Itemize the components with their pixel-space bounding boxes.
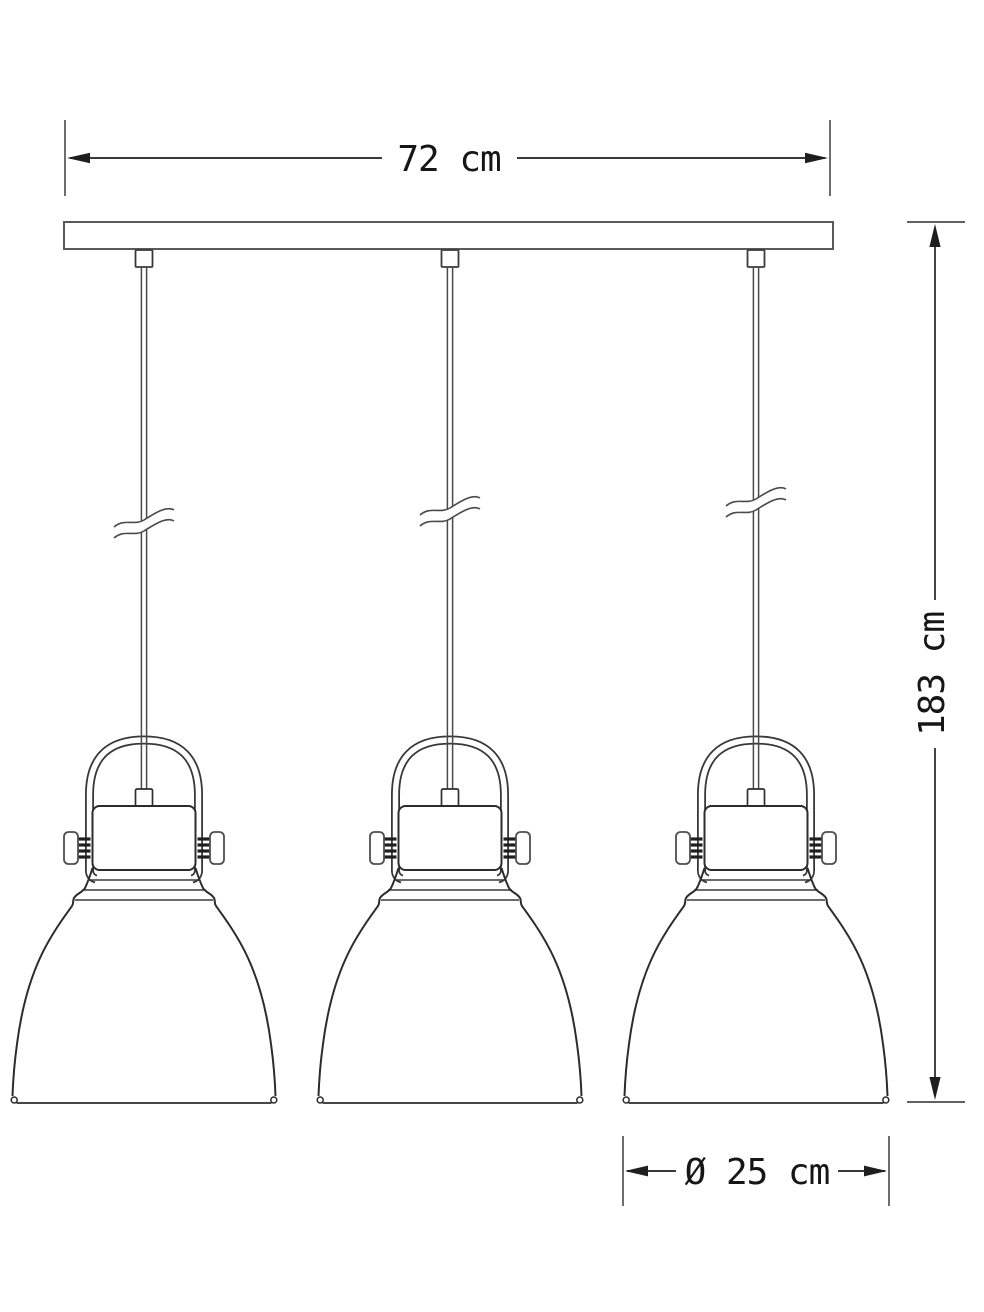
diameter-dimension: Ø 25 cm [623, 1136, 889, 1206]
arrowhead-down-icon [929, 1077, 940, 1100]
pendant-lamp-dimension-diagram: 72 cm 183 cm Ø 25 cm [0, 0, 984, 1312]
diagram-svg: 72 cm 183 cm Ø 25 cm [0, 0, 984, 1312]
arrowhead-right-icon [805, 153, 828, 163]
arrowhead-up-icon [929, 224, 940, 247]
width-dimension-label: 72 cm [397, 139, 500, 180]
arrowhead-left-icon [67, 153, 90, 163]
height-dimension: 183 cm [907, 222, 965, 1102]
arrowhead-left-icon [625, 1166, 648, 1177]
ceiling-canopy-bar [64, 222, 833, 249]
width-dimension: 72 cm [65, 120, 830, 196]
pendant-lamp-3 [623, 250, 889, 1103]
arrowhead-right-icon [864, 1166, 887, 1177]
cord-break-icon [420, 497, 480, 526]
diameter-dimension-label: Ø 25 cm [685, 1152, 830, 1193]
height-dimension-label: 183 cm [912, 612, 953, 736]
cord-break-icon [114, 509, 174, 538]
pendant-lamp-1 [11, 250, 277, 1103]
pendant-lamp-2 [317, 250, 583, 1103]
cord-break-icon [726, 488, 786, 517]
